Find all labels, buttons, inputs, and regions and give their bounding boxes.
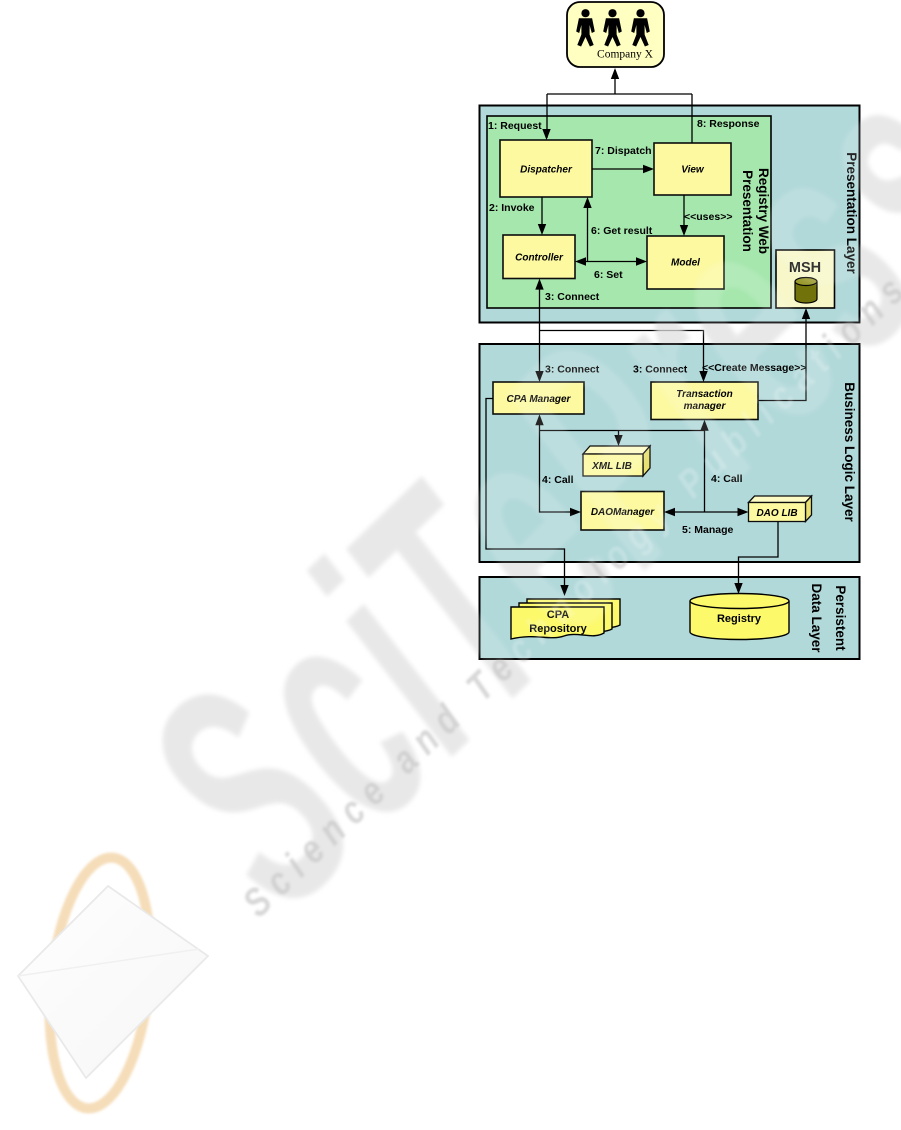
svg-text:Company X: Company X — [597, 49, 654, 61]
svg-text:Dispatcher: Dispatcher — [520, 165, 573, 176]
svg-text:Persistent: Persistent — [833, 585, 848, 651]
svg-text:2: Invoke: 2: Invoke — [489, 202, 535, 214]
svg-text:Registry: Registry — [717, 613, 762, 625]
svg-text:7: Dispatch: 7: Dispatch — [595, 145, 652, 157]
svg-text:1: Request: 1: Request — [488, 120, 542, 132]
svg-text:Data Layer: Data Layer — [809, 583, 824, 653]
